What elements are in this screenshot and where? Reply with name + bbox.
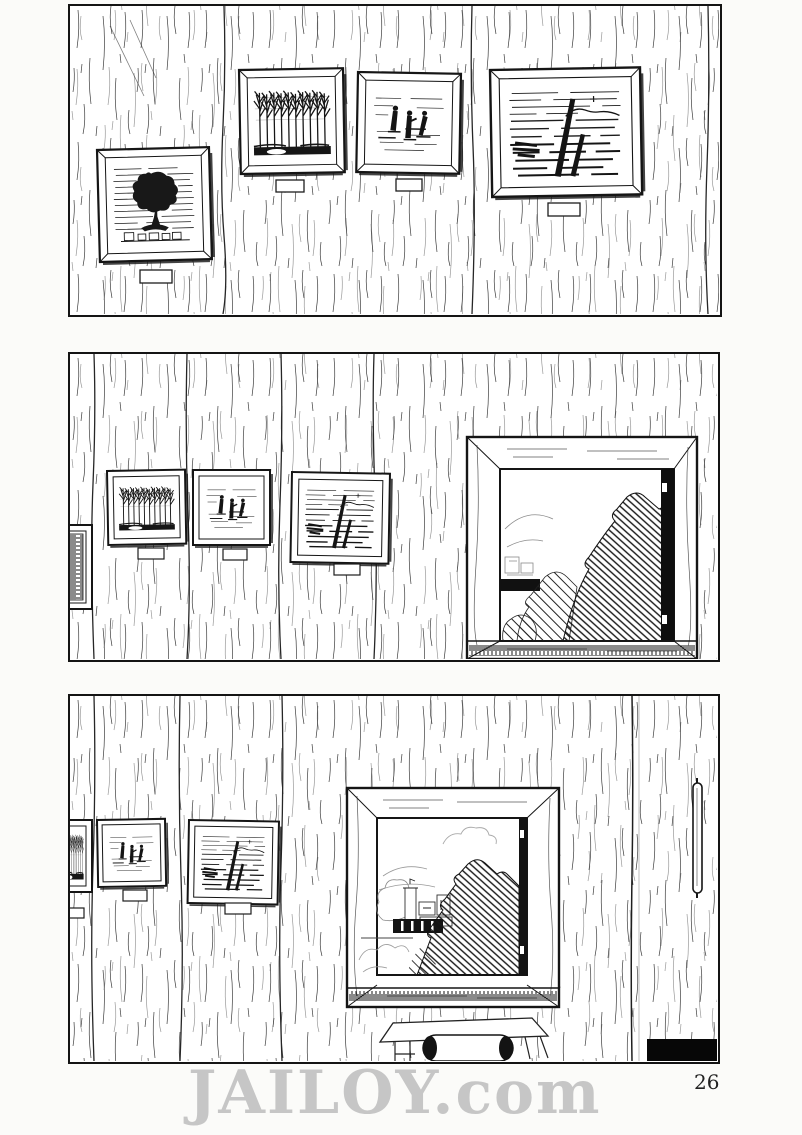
panel-3-art <box>70 696 717 1061</box>
black-corner-box <box>647 1039 717 1061</box>
picture-frame-shipwreck <box>188 820 281 907</box>
door-handle <box>693 778 702 898</box>
manga-panel-1 <box>68 4 722 317</box>
picture-placard <box>225 903 251 914</box>
panel-2-art <box>70 354 717 659</box>
picture-placard <box>140 270 172 283</box>
manga-panel-3 <box>68 694 720 1064</box>
picture-frame-figures <box>193 470 272 547</box>
page-number: 26 <box>694 1070 719 1094</box>
panel-1-art <box>70 6 719 314</box>
picture-placard <box>138 548 164 559</box>
picture-placard <box>334 564 360 575</box>
hinge <box>662 483 667 492</box>
hinge <box>662 615 667 624</box>
picture-frame-forest <box>239 68 347 176</box>
picture-frame-forest <box>107 470 188 547</box>
picture-placard <box>548 203 580 216</box>
picture-placard <box>123 890 147 901</box>
manga-page: JAILOY.com 26 <box>0 0 802 1135</box>
watermark-text: JAILOY.com <box>188 1058 602 1128</box>
picture-frame-figures <box>97 819 168 889</box>
window-view-village <box>359 818 527 975</box>
window <box>347 788 559 1007</box>
picture-placard <box>70 908 84 918</box>
picture-frame-forest-partial <box>70 820 92 892</box>
window <box>467 437 697 659</box>
picture-frame-shipwreck <box>290 472 392 566</box>
picture-frame-edge-on <box>70 525 92 609</box>
hinge <box>520 946 524 954</box>
picture-frame-figures <box>356 72 463 176</box>
window-view-forest <box>500 469 674 641</box>
picture-placard <box>223 549 247 560</box>
picture-frame-lone-tree <box>97 147 214 264</box>
picture-frame-shipwreck <box>490 67 644 199</box>
manga-panel-2 <box>68 352 720 662</box>
window-sill-hatch <box>469 645 695 656</box>
hinge <box>520 830 524 838</box>
picture-placard <box>396 179 422 191</box>
dark-wall-band <box>500 579 540 591</box>
picture-placard <box>276 180 304 192</box>
window-sill-hatch <box>349 991 557 1001</box>
